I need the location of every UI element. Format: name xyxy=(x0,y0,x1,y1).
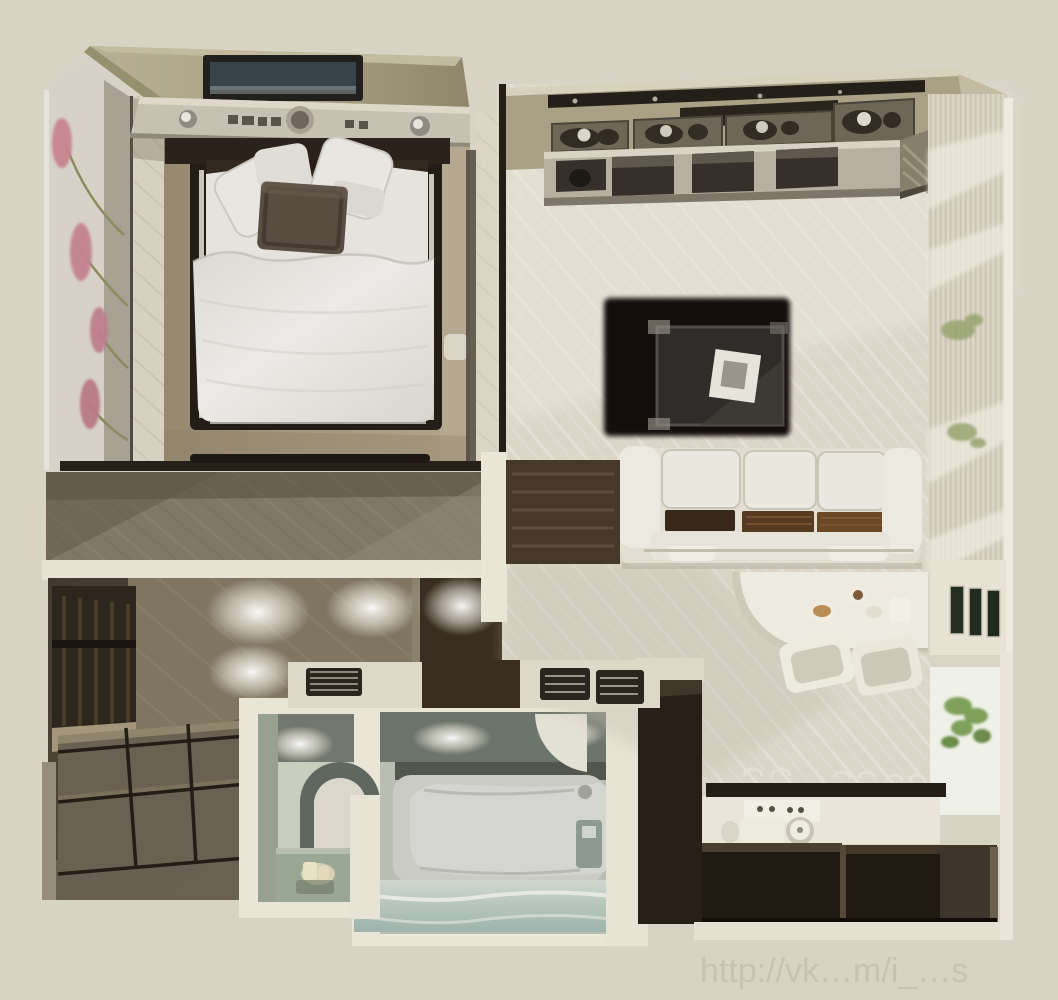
svg-text:http://vk…m/i_…s: http://vk…m/i_…s xyxy=(700,952,968,990)
